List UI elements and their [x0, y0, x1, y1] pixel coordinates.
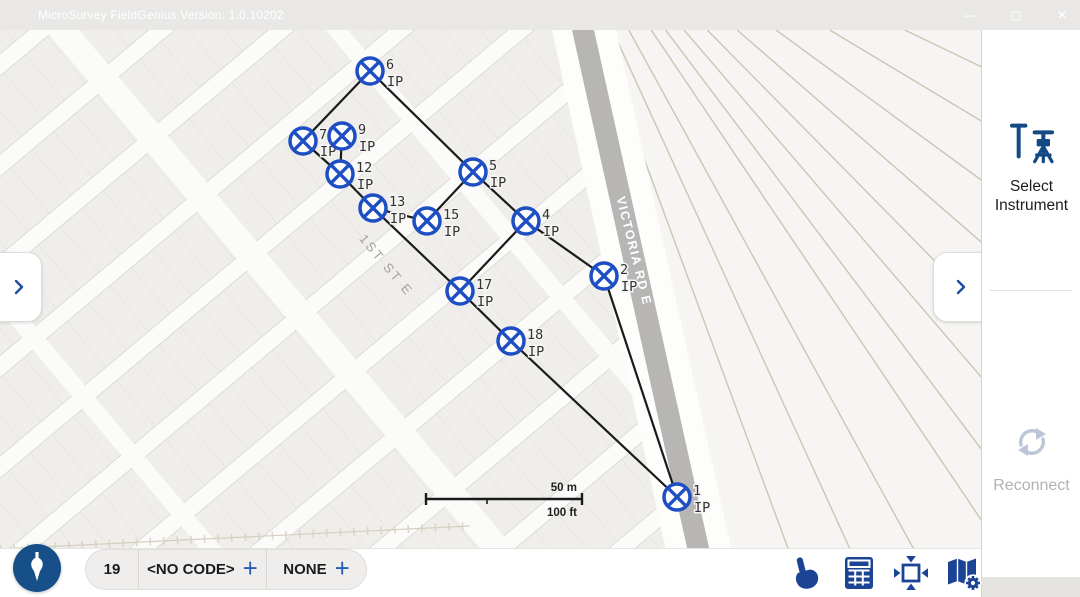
point-number-label: 15	[443, 207, 459, 223]
instrument-icon	[1008, 120, 1056, 166]
point-entry-bar: 19 <NO CODE> + NONE +	[85, 549, 367, 590]
zoom-extents-icon	[892, 554, 930, 592]
sidebar-footer	[982, 577, 1080, 597]
tap-icon	[789, 554, 825, 592]
point-desc-label: IP	[477, 294, 493, 310]
instrument-sidebar: Select Instrument Reconnect	[981, 30, 1080, 597]
point-desc-label: IP	[621, 279, 637, 295]
app-window: { "window": { "title": "MicroSurvey Fiel…	[0, 0, 1080, 597]
select-instrument-label-line1: Select	[982, 177, 1080, 196]
right-panel-toggle[interactable]	[933, 252, 985, 322]
linework-selector[interactable]: NONE +	[266, 550, 366, 589]
point-number-label: 2	[620, 262, 628, 278]
select-instrument-button[interactable]: Select Instrument	[982, 120, 1080, 216]
code-selector[interactable]: <NO CODE> +	[138, 550, 266, 589]
zoom-extents-button[interactable]	[890, 552, 932, 594]
point-number-value: 19	[104, 561, 121, 578]
select-instrument-label-line2: Instrument	[982, 196, 1080, 215]
chevron-right-icon	[13, 279, 25, 295]
scale-metric-label: 50 m	[551, 482, 577, 494]
point-number-label: 7	[319, 127, 327, 143]
map-canvas[interactable]: 1ST ST E VICTORIA RD E 1IP2IP4IP5IP6IP7I…	[0, 30, 981, 597]
scale-imperial-label: 100 ft	[547, 507, 577, 519]
point-number-label: 1	[693, 483, 701, 499]
plumb-bob-icon	[22, 551, 52, 585]
point-desc-label: IP	[387, 74, 403, 90]
point-desc-label: IP	[357, 177, 373, 193]
title-bar: MicroSurvey FieldGenius Version: 1.0.102…	[0, 0, 1080, 30]
point-number-label: 5	[489, 158, 497, 174]
tap-select-button[interactable]	[786, 552, 828, 594]
refresh-icon	[1010, 420, 1054, 464]
left-panel-toggle[interactable]	[0, 252, 42, 322]
point-number-label: 4	[542, 207, 550, 223]
reconnect-button[interactable]: Reconnect	[982, 420, 1080, 495]
point-desc-label: IP	[490, 175, 506, 191]
code-value: <NO CODE>	[147, 561, 235, 578]
add-linework-icon[interactable]: +	[335, 555, 350, 581]
map-settings-button[interactable]	[942, 552, 984, 594]
calculator-icon	[842, 555, 876, 591]
point-number-label: 18	[527, 327, 543, 343]
add-code-icon[interactable]: +	[243, 555, 258, 581]
point-desc-label: IP	[359, 139, 375, 155]
point-number-label: 13	[389, 194, 405, 210]
map-tool-buttons	[786, 548, 984, 597]
store-point-button[interactable]	[13, 544, 61, 592]
point-desc-label: IP	[694, 500, 710, 516]
minimize-button[interactable]: —	[960, 8, 980, 22]
calculator-button[interactable]	[838, 552, 880, 594]
chevron-right-icon	[955, 279, 967, 295]
point-number-label: 12	[356, 160, 372, 176]
reconnect-label: Reconnect	[982, 477, 1080, 495]
map-settings-icon	[943, 554, 983, 592]
linework-value: NONE	[283, 561, 326, 578]
close-button[interactable]: ✕	[1052, 8, 1072, 22]
point-desc-label: IP	[444, 224, 460, 240]
point-desc-label: IP	[390, 211, 406, 227]
point-number-label: 17	[476, 277, 492, 293]
point-number-label: 9	[358, 122, 366, 138]
point-desc-label: IP	[528, 344, 544, 360]
next-point-number[interactable]: 19	[86, 550, 138, 589]
maximize-button[interactable]: ▢	[1006, 8, 1026, 22]
window-title: MicroSurvey FieldGenius Version: 1.0.102…	[38, 8, 284, 22]
point-number-label: 6	[386, 57, 394, 73]
sidebar-divider	[990, 290, 1072, 291]
point-desc-label: IP	[543, 224, 559, 240]
